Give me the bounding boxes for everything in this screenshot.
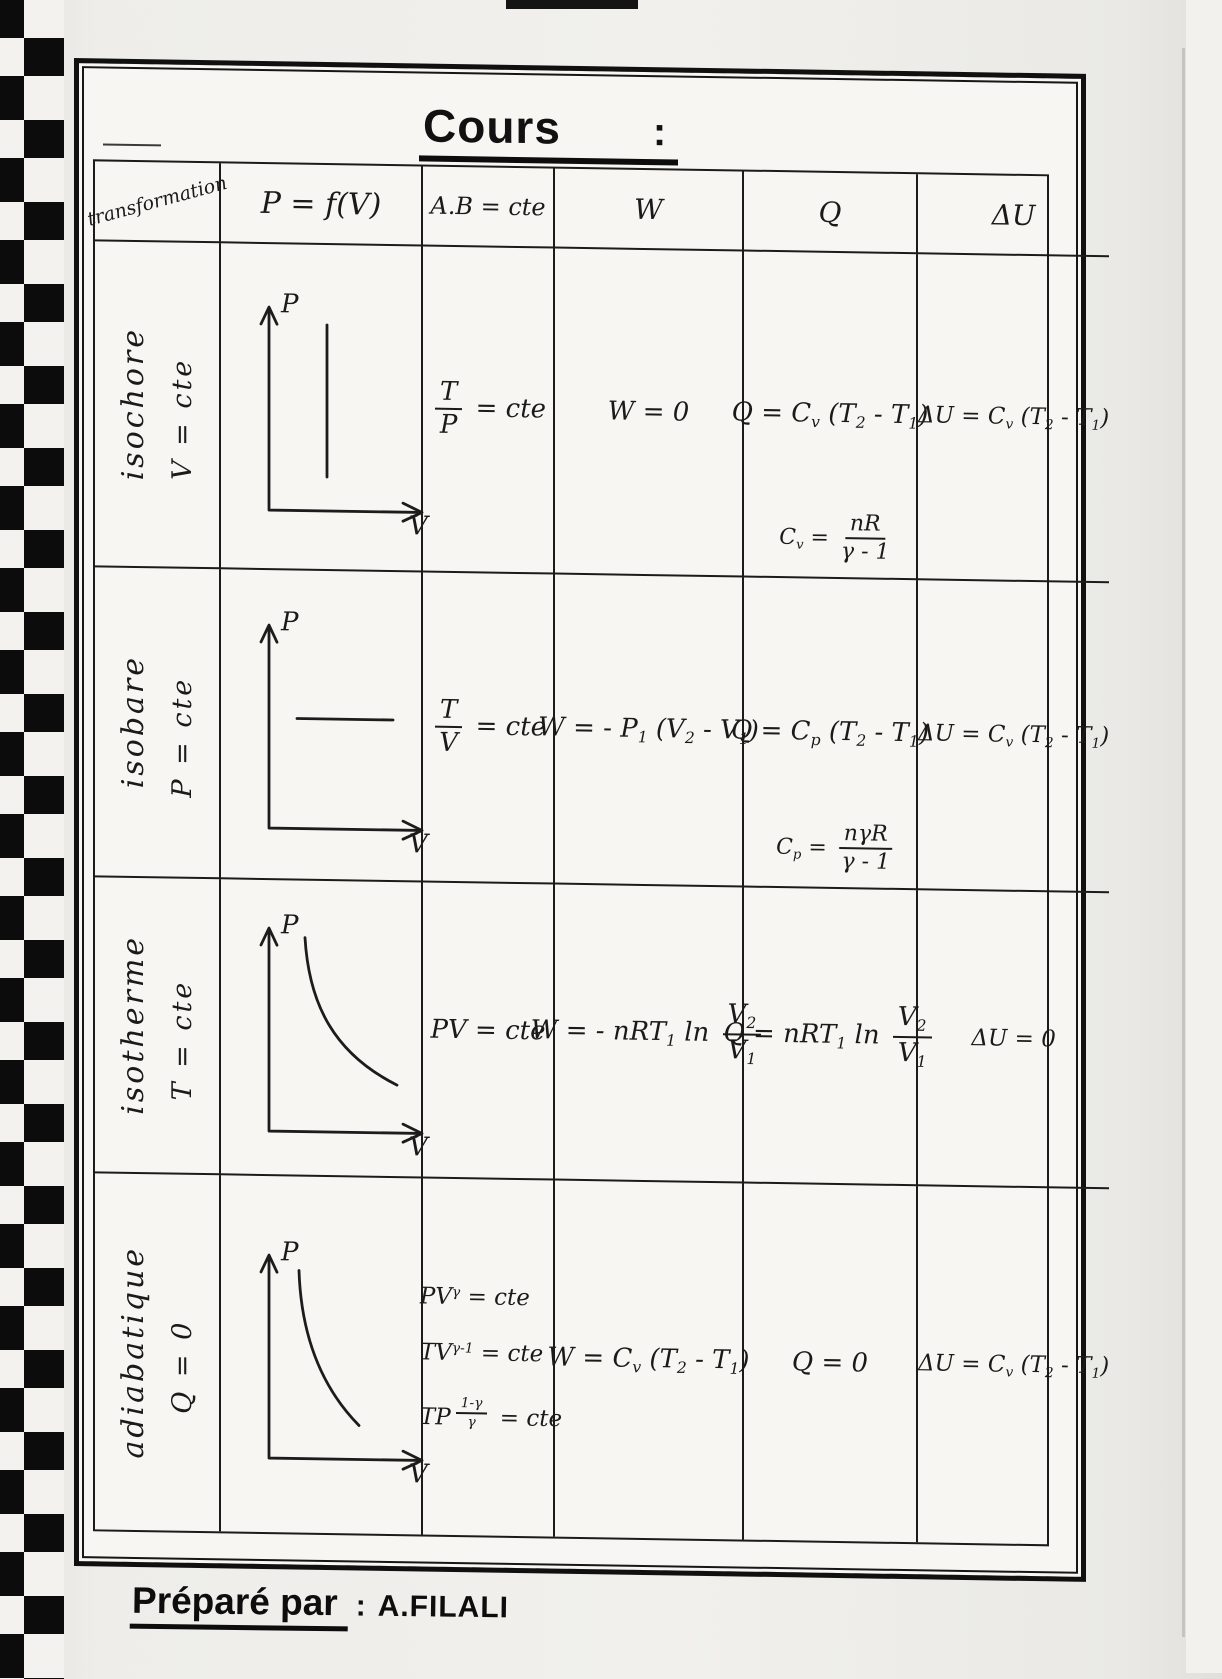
- axes: [269, 929, 421, 1133]
- cell-isobare-internal-energy: ΔU = Cv (T2 - T1): [918, 580, 1109, 893]
- header-internal-energy-label: ΔU: [992, 198, 1036, 232]
- heat-capacity-note: Cp = nγRγ - 1: [776, 821, 898, 876]
- relation-formula-tp: TP1-γγ = cte: [420, 1395, 562, 1432]
- internal-energy-formula: ΔU = Cv (T2 - T1): [918, 1350, 1109, 1382]
- row-name: isobare: [116, 655, 151, 789]
- relation-stack: PVγ = cte TVγ-1 = cte TP1-γγ = cte: [414, 1283, 562, 1432]
- frame-content: Cours: transformation P = f(V) A.B = cte…: [89, 71, 1071, 1568]
- row-label-adiabatique: adiabatique Q = 0: [95, 1173, 221, 1531]
- heat-formula: Q = nRT1 ln V2V1: [723, 1000, 936, 1071]
- pv-graph-adiabatique: P V: [235, 1228, 435, 1483]
- header-cell-transformation: transformation: [95, 161, 221, 243]
- curve-horizontal-line: [297, 719, 393, 721]
- cell-adiabatique-relation: PVγ = cte TVγ-1 = cte TP1-γγ = cte: [423, 1178, 555, 1536]
- cell-isochore-work: W = 0: [555, 249, 744, 578]
- scan-artifact-bar: [506, 0, 638, 9]
- header-cell-heat: Q: [744, 172, 918, 255]
- pv-graph-isochore: P V: [235, 280, 435, 535]
- row-name: isochore: [116, 327, 151, 481]
- internal-energy-formula: ΔU = Cv (T2 - T1): [918, 402, 1109, 434]
- cell-isobare-graph: P V: [221, 569, 423, 882]
- header-transformation-label: transformation: [85, 172, 230, 231]
- course-table: transformation P = f(V) A.B = cte W Q ΔU…: [93, 159, 1049, 1546]
- pv-graph-isobare: P V: [235, 598, 435, 853]
- y-axis-label: P: [280, 607, 299, 637]
- pv-graph-isotherme: P V: [235, 901, 435, 1156]
- cell-adiabatique-graph: P V: [221, 1175, 423, 1534]
- curve-hyperbola: [305, 938, 397, 1085]
- relation-formula-pv: PVγ = cte: [420, 1283, 530, 1311]
- heat-formula: Q = 0: [792, 1347, 868, 1378]
- work-formula: W = - P1 (V2 - V1): [538, 712, 759, 748]
- axes: [269, 1256, 421, 1460]
- internal-energy-formula: ΔU = Cv (T2 - T1): [918, 720, 1109, 752]
- y-axis-label: P: [280, 289, 299, 319]
- curve-steep-hyperbola: [299, 1271, 359, 1426]
- title-colon: :: [653, 110, 666, 154]
- y-axis-label: P: [280, 1237, 299, 1267]
- header-relation-label: A.B = cte: [430, 192, 545, 222]
- stray-pen-mark: [103, 143, 161, 146]
- header-graph-label: P = f(V): [261, 185, 382, 222]
- axes: [269, 308, 421, 512]
- header-cell-relation: A.B = cte: [423, 166, 555, 248]
- row-name: isotherme: [116, 935, 151, 1115]
- relation-formula: TV = cte: [430, 695, 546, 759]
- header-work-label: W: [634, 192, 663, 225]
- work-formula: W = Cv (T2 - T1): [547, 1342, 749, 1378]
- internal-energy-formula: ΔU = 0: [971, 1025, 1056, 1052]
- relation-formula: TP = cte: [430, 377, 546, 441]
- row-condition: Q = 0: [167, 1319, 198, 1414]
- relation-formula: PV = cte: [431, 1015, 546, 1047]
- heat-formula: Q = Cp (T2 - T1): [731, 715, 929, 751]
- cell-isotherme-graph: P V: [221, 879, 423, 1178]
- row-condition: T = cte: [167, 979, 198, 1100]
- page-edge-margin: [1186, 0, 1222, 1673]
- title-underline: Cours:: [419, 98, 678, 165]
- work-formula: W = 0: [608, 396, 690, 427]
- document-frame: Cours: transformation P = f(V) A.B = cte…: [74, 58, 1086, 1582]
- cell-isobare-heat: Q = Cp (T2 - T1) Cp = nγRγ - 1: [744, 578, 918, 891]
- header-cell-graph: P = f(V): [221, 163, 423, 246]
- cell-isochore-heat: Q = Cv (T2 - T1) Cv = nRγ - 1: [744, 252, 918, 581]
- footer-separator: :: [355, 1589, 365, 1622]
- header-cell-work: W: [555, 169, 744, 252]
- row-label-isobare: isobare P = cte: [95, 567, 221, 879]
- row-condition: V = cte: [167, 357, 198, 480]
- cell-adiabatique-heat: Q = 0: [744, 1184, 918, 1543]
- cell-adiabatique-work: W = Cv (T2 - T1): [555, 1181, 744, 1540]
- header-cell-internal-energy: ΔU: [918, 174, 1109, 257]
- binding-teeth: [24, 0, 64, 1679]
- row-label-isotherme: isotherme T = cte: [95, 877, 221, 1175]
- cell-isochore-graph: P V: [221, 243, 423, 572]
- cell-isochore-relation: TP = cte: [423, 246, 555, 574]
- y-axis-label: P: [280, 910, 299, 940]
- row-name: adiabatique: [116, 1245, 151, 1458]
- page-title: Cours:: [419, 98, 678, 165]
- cell-isochore-internal-energy: ΔU = Cv (T2 - T1): [918, 254, 1109, 583]
- row-condition: P = cte: [167, 676, 198, 797]
- row-label-isochore: isochore V = cte: [95, 241, 221, 569]
- footer-label: Préparé par: [130, 1580, 348, 1632]
- cell-isobare-work: W = - P1 (V2 - V1): [555, 575, 744, 888]
- title-text: Cours: [423, 99, 561, 153]
- heat-capacity-note: Cv = nRγ - 1: [779, 511, 894, 566]
- cell-isobare-relation: TV = cte: [423, 572, 555, 884]
- relation-formula-tv: TVγ-1 = cte: [420, 1339, 543, 1367]
- cell-isotherme-work: W = - nRT1 ln V2V1: [555, 885, 744, 1184]
- heat-formula: Q = Cv (T2 - T1): [732, 397, 929, 433]
- header-heat-label: Q: [819, 195, 842, 228]
- cell-adiabatique-internal-energy: ΔU = Cv (T2 - T1): [918, 1186, 1109, 1545]
- footer: Préparé par:A.FILALI: [130, 1580, 510, 1634]
- footer-author: A.FILALI: [377, 1590, 509, 1625]
- axes: [269, 626, 421, 830]
- page-edge-line: [1182, 48, 1185, 1637]
- cell-isotherme-heat: Q = nRT1 ln V2V1: [744, 888, 918, 1187]
- cell-isotherme-internal-energy: ΔU = 0: [918, 890, 1109, 1189]
